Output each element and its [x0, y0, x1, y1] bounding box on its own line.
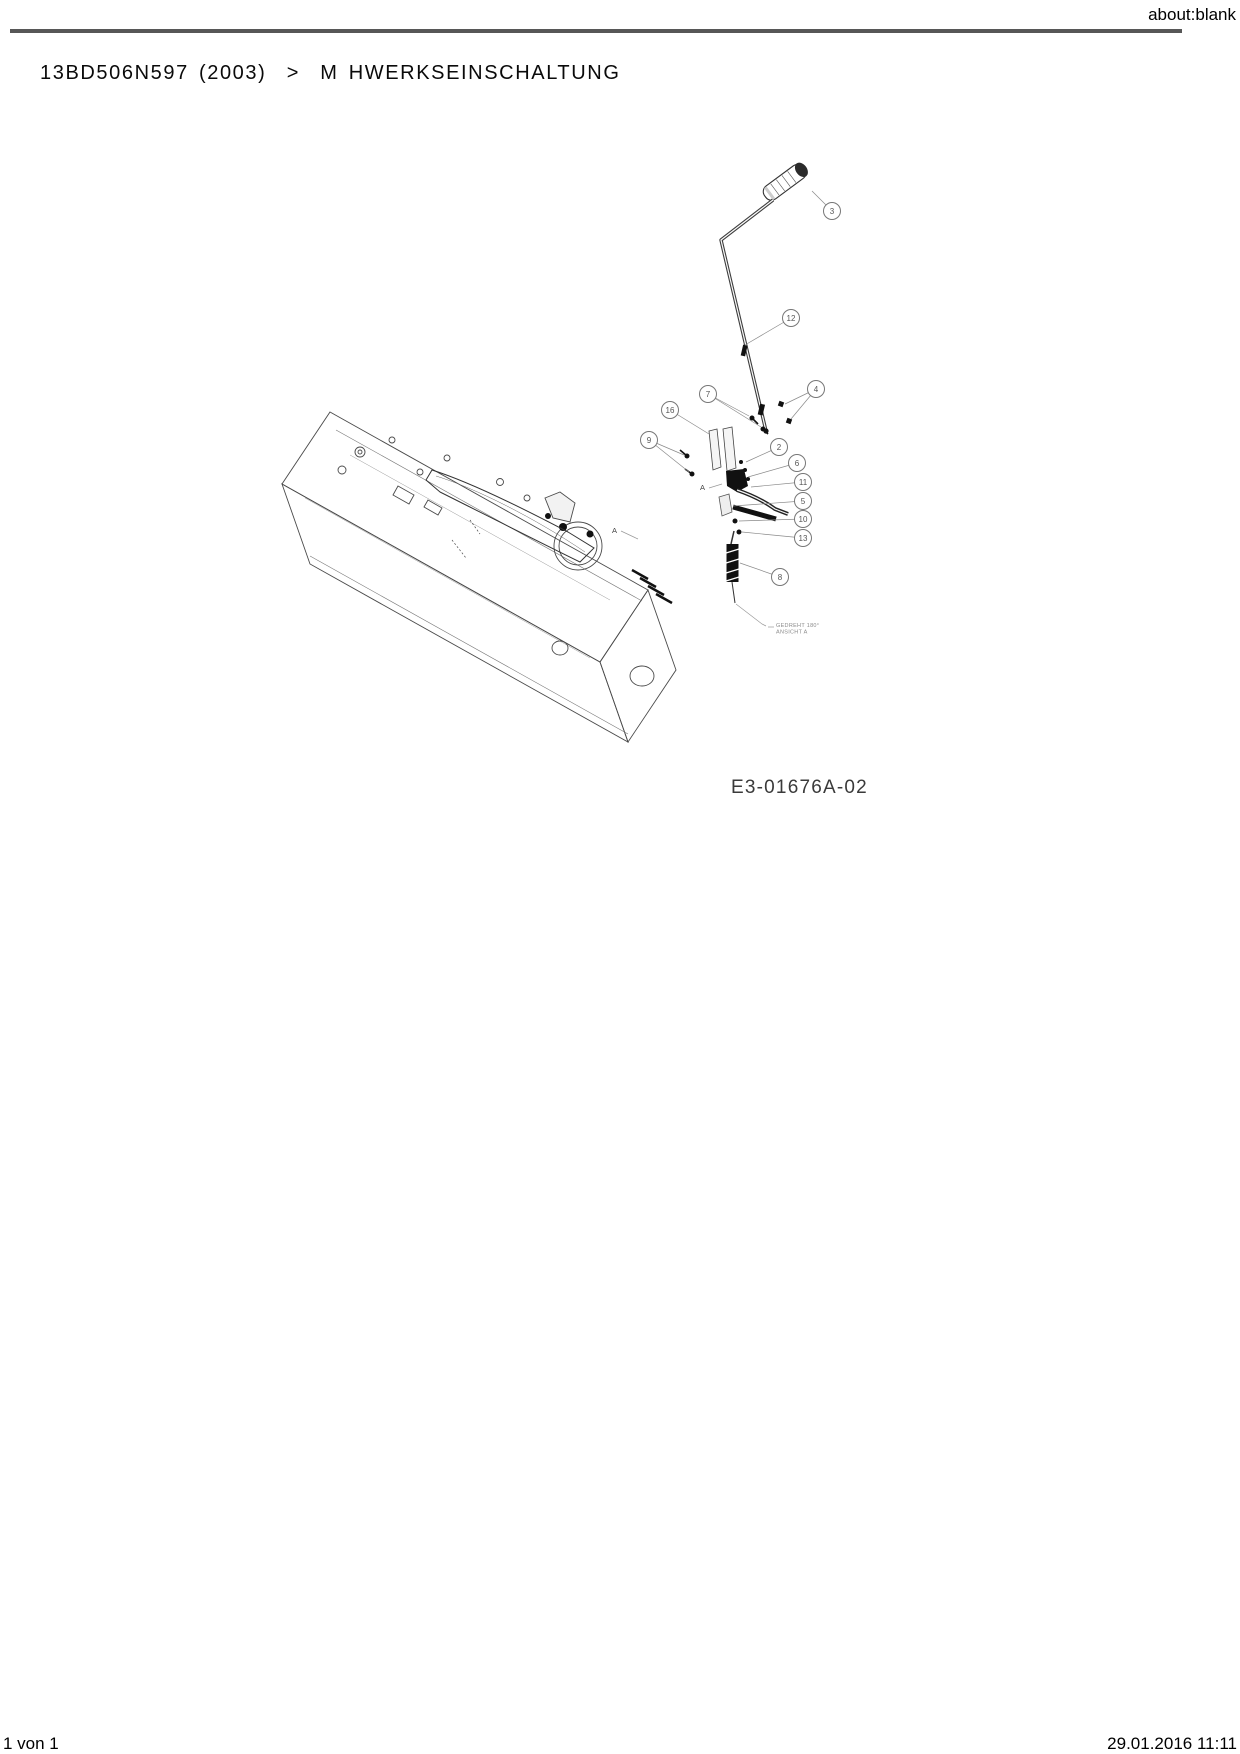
note-leader	[621, 484, 774, 627]
deck-front-face	[282, 484, 628, 742]
callout-number: 11	[799, 478, 808, 487]
callout-number: 12	[787, 314, 796, 323]
callout-number: 10	[799, 515, 808, 524]
printed-page: about:blank 13BD506N597 (2003) > M HWERK…	[0, 0, 1240, 1754]
lever-assembly	[721, 160, 811, 434]
clutch-cam	[726, 469, 748, 492]
diagram-note-line: GEDREHT 180°	[776, 623, 819, 629]
deck-drawing	[282, 412, 676, 742]
handle-grip	[760, 160, 810, 203]
callout-number: 6	[795, 459, 800, 468]
diagram-note-line: ANSICHT A	[776, 630, 808, 636]
deck-hatch-band	[632, 570, 672, 603]
footer-timestamp: 29.01.2016 11:11	[1107, 1734, 1237, 1754]
view-label: A	[700, 483, 705, 492]
callout-number: 9	[647, 436, 652, 445]
deck-top-face	[282, 412, 648, 662]
clutch-shaft	[733, 507, 776, 519]
callout-number: 16	[666, 406, 675, 415]
footer-page-count: 1 von 1	[3, 1734, 59, 1754]
callout-number: 13	[799, 534, 808, 543]
callout-number: 8	[778, 573, 783, 582]
view-label: A	[612, 526, 617, 535]
deck-side-hole	[630, 666, 654, 686]
callout-number: 4	[814, 385, 819, 394]
callout-number: 5	[801, 497, 806, 506]
callout-number: 7	[706, 390, 711, 399]
callout-number: 3	[830, 207, 835, 216]
parts-diagram: 312741692611510138AAGEDREHT 180°ANSICHT …	[0, 0, 1240, 1754]
callout-number: 2	[777, 443, 782, 452]
drawing-number-label: E3-01676A-02	[731, 777, 868, 799]
pivot-bracket	[709, 429, 721, 470]
pivot-lever	[723, 427, 736, 471]
deck-right-face	[600, 590, 676, 742]
